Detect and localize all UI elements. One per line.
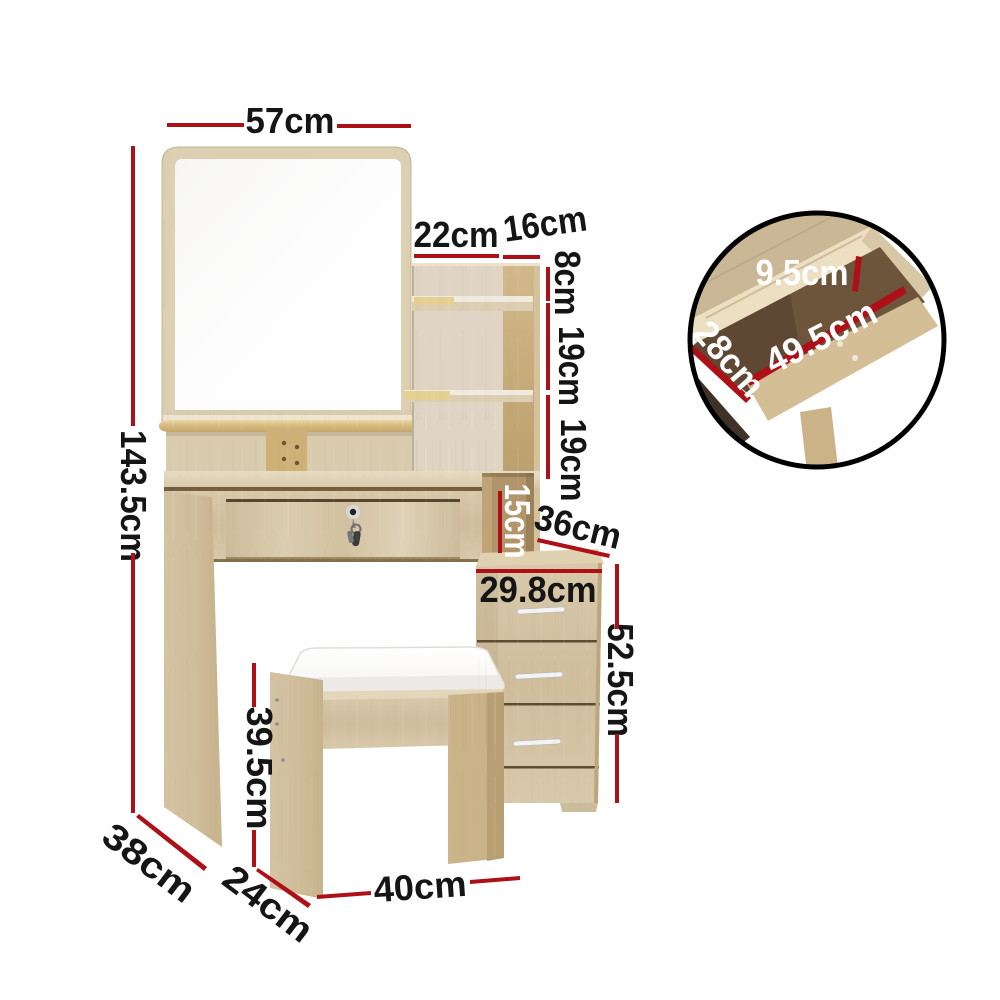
svg-text:19cm: 19cm [551, 326, 592, 406]
svg-text:9.5cm: 9.5cm [756, 252, 849, 293]
svg-text:22cm: 22cm [414, 214, 499, 255]
svg-text:143.5cm: 143.5cm [113, 430, 154, 562]
svg-text:57cm: 57cm [246, 100, 335, 141]
svg-text:19cm: 19cm [553, 419, 594, 502]
svg-text:29.8cm: 29.8cm [480, 569, 597, 610]
svg-text:39.5cm: 39.5cm [239, 707, 280, 830]
svg-text:40cm: 40cm [372, 863, 468, 910]
svg-text:52.5cm: 52.5cm [600, 623, 641, 737]
svg-text:8cm: 8cm [547, 251, 588, 316]
svg-text:15cm: 15cm [497, 484, 538, 559]
